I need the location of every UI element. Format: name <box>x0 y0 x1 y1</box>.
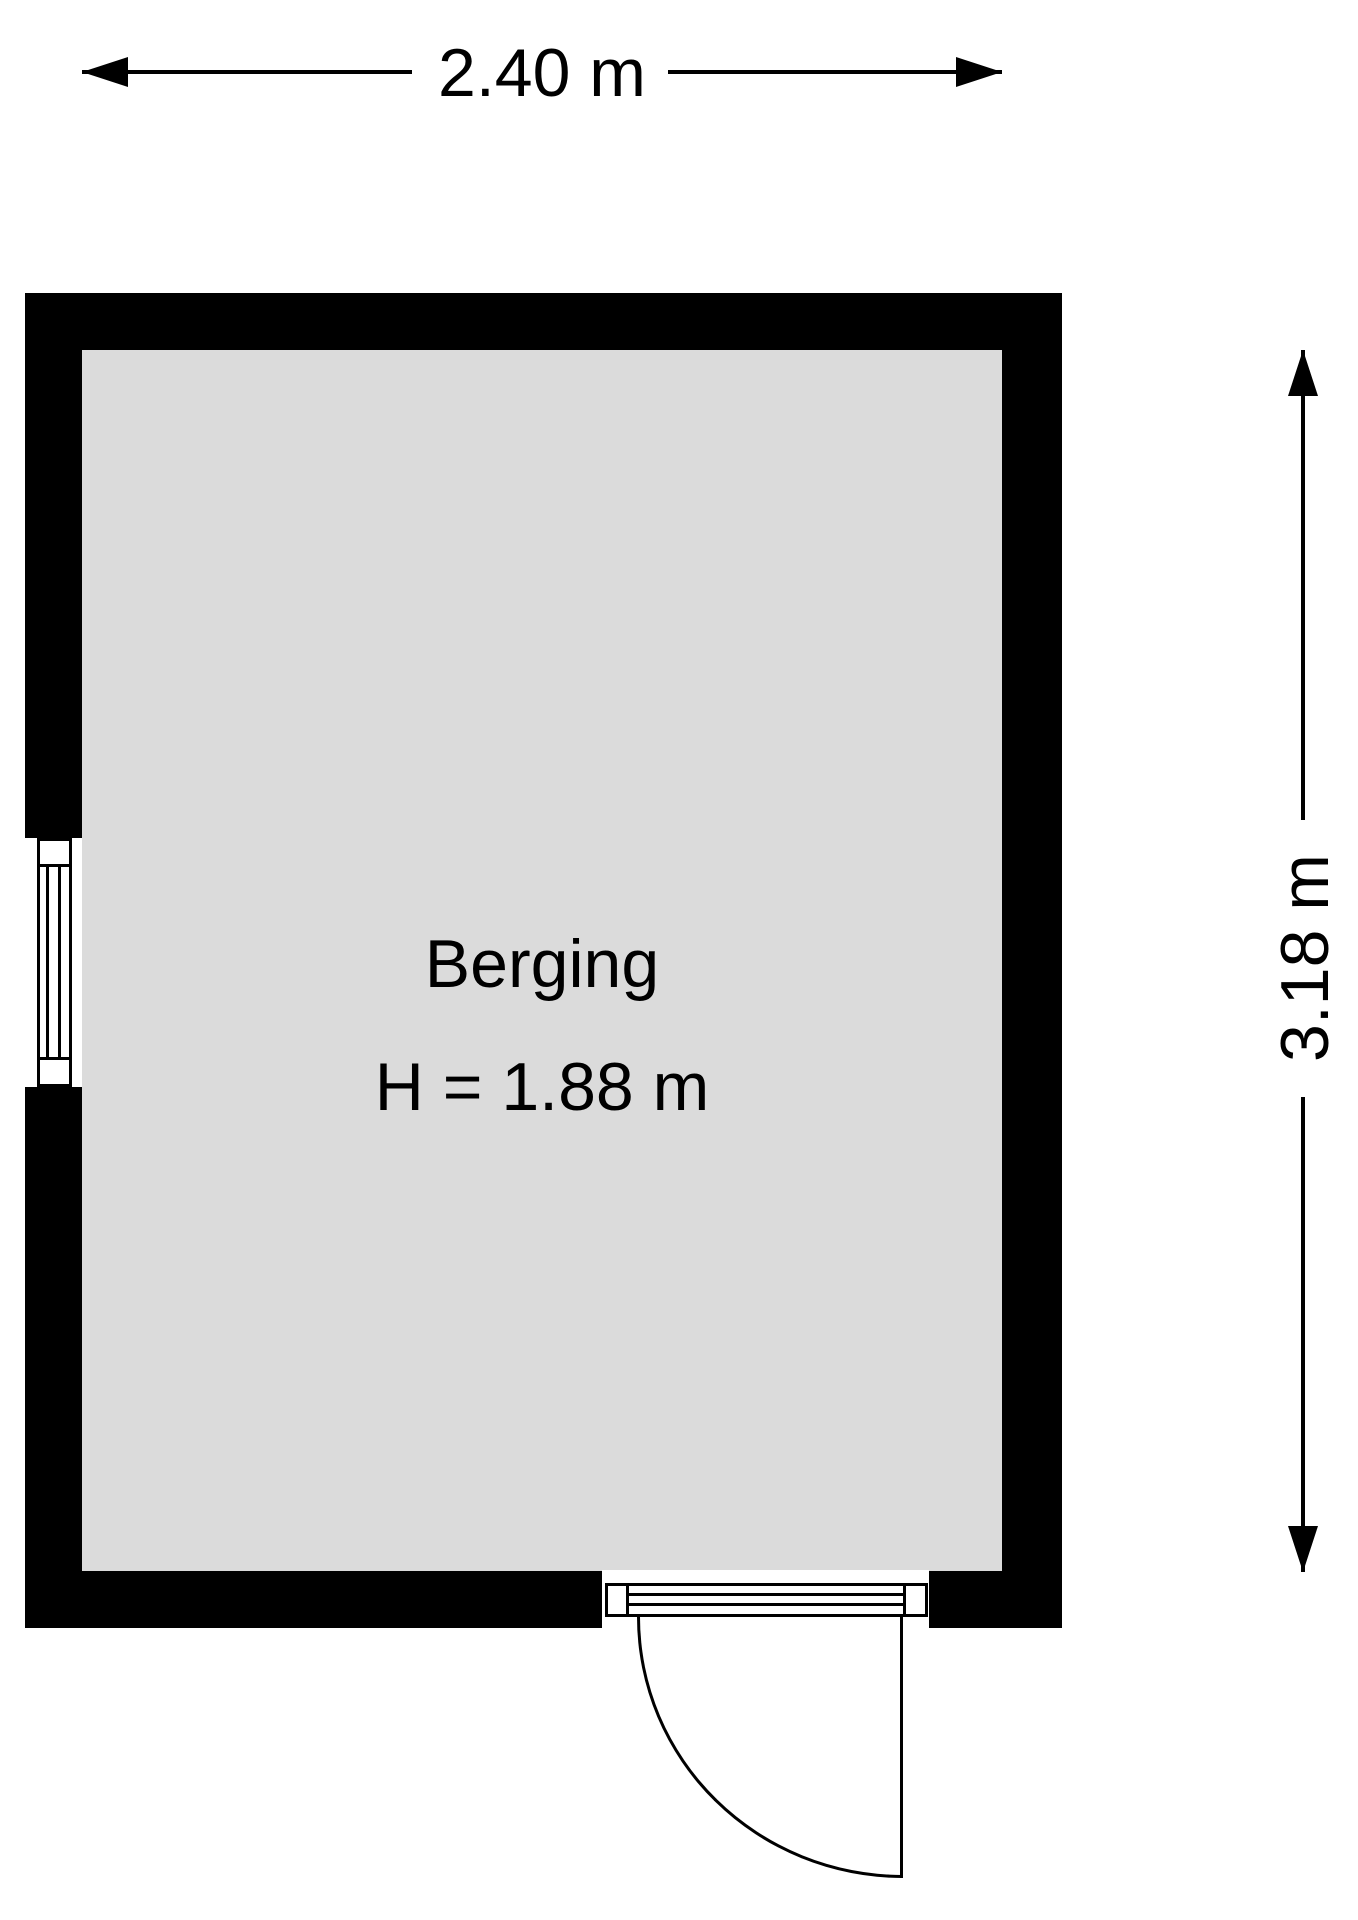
dimension-height-line-top <box>1301 350 1305 820</box>
floorplan: 2.40 m 3.18 m <box>0 0 1358 1920</box>
dimension-width-line-right <box>668 70 1002 74</box>
door-swing-arc <box>637 1617 903 1878</box>
door-jamb-left <box>605 1583 629 1617</box>
door-threshold-line-1 <box>629 1583 903 1586</box>
arrow-down-icon <box>1288 1526 1318 1572</box>
window-glass-line-1 <box>46 867 49 1057</box>
window-sill-top <box>37 864 72 867</box>
window-sill-bottom <box>37 1057 72 1060</box>
dimension-height-line-bottom <box>1301 1097 1305 1572</box>
window-frame <box>37 838 72 1087</box>
dimension-width-label: 2.40 m <box>438 39 646 107</box>
dimension-width-line-left <box>82 70 412 74</box>
room-name-label: Berging <box>425 930 659 998</box>
arrow-right-icon <box>956 57 1002 87</box>
door-threshold-line-2 <box>629 1593 903 1596</box>
door-jamb-right <box>903 1583 928 1617</box>
room-height-label: H = 1.88 m <box>375 1053 710 1121</box>
arrow-left-icon <box>82 57 128 87</box>
dimension-height-label: 3.18 m <box>1271 854 1339 1062</box>
window-glass-line-2 <box>58 867 61 1057</box>
door-threshold-line-3 <box>629 1603 903 1606</box>
arrow-up-icon <box>1288 350 1318 396</box>
